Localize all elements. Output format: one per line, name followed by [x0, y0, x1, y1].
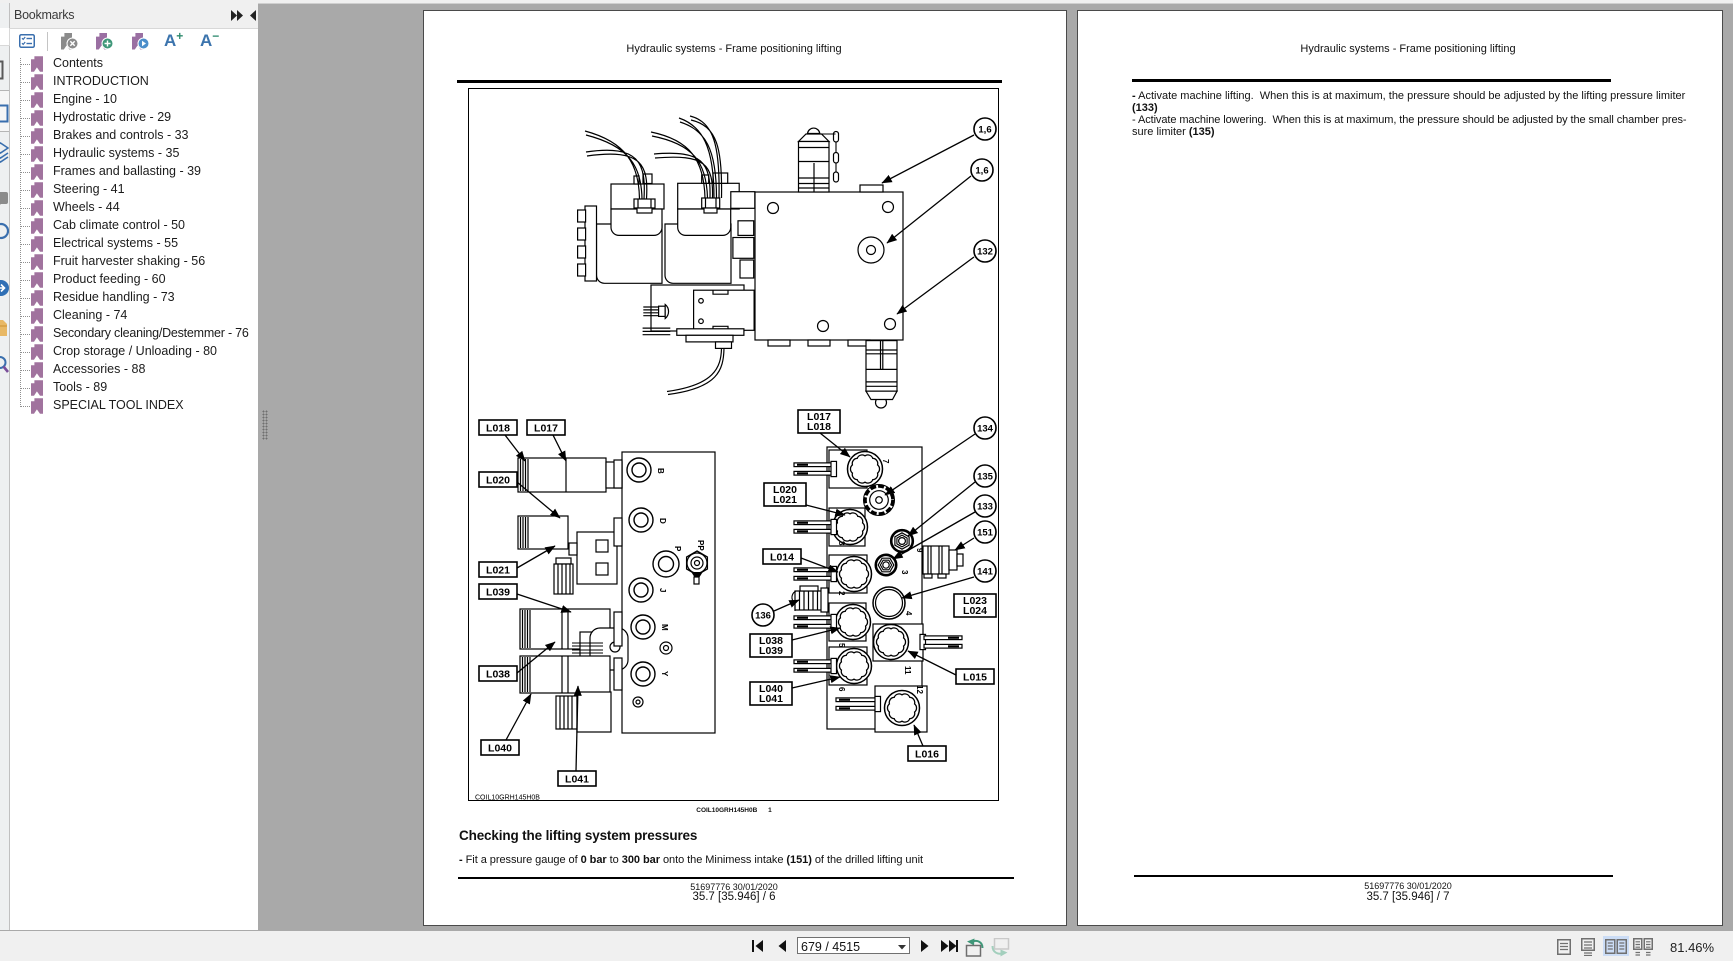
svg-text:L021: L021 — [773, 494, 797, 506]
svg-text:135: 135 — [977, 471, 994, 482]
svg-text:L018: L018 — [486, 423, 510, 435]
svg-text:L039: L039 — [759, 645, 783, 657]
svg-text:L041: L041 — [565, 774, 589, 786]
svg-text:7: 7 — [881, 459, 890, 464]
svg-text:Y: Y — [660, 671, 669, 677]
svg-text:COIL10GRH145H0B: COIL10GRH145H0B — [475, 795, 540, 802]
svg-text:1,6: 1,6 — [978, 124, 991, 135]
svg-text:L038: L038 — [486, 669, 510, 681]
svg-text:5: 5 — [837, 643, 846, 648]
svg-text:133: 133 — [977, 501, 993, 512]
svg-text:L017: L017 — [534, 423, 558, 435]
svg-text:L018: L018 — [807, 421, 831, 433]
svg-text:M: M — [660, 624, 669, 631]
svg-text:4: 4 — [904, 611, 913, 616]
svg-text:141: 141 — [977, 566, 994, 577]
svg-text:L015: L015 — [963, 672, 987, 684]
svg-text:B: B — [656, 468, 665, 474]
svg-text:11: 11 — [903, 666, 912, 675]
svg-text:L020: L020 — [486, 475, 510, 487]
svg-text:L021: L021 — [486, 565, 510, 577]
svg-text:L040: L040 — [488, 743, 512, 755]
svg-text:134: 134 — [977, 423, 994, 434]
svg-text:P: P — [673, 546, 682, 552]
svg-text:2: 2 — [837, 591, 846, 596]
svg-text:L041: L041 — [759, 693, 783, 705]
svg-text:J: J — [658, 588, 667, 592]
svg-text:9: 9 — [915, 548, 924, 553]
svg-text:12: 12 — [915, 685, 924, 694]
svg-text:3: 3 — [900, 570, 909, 575]
svg-text:L016: L016 — [915, 749, 939, 761]
svg-text:L024: L024 — [963, 605, 987, 617]
svg-text:L039: L039 — [486, 587, 510, 599]
svg-text:132: 132 — [977, 246, 993, 257]
svg-text:PP: PP — [696, 540, 705, 551]
svg-text:136: 136 — [755, 610, 771, 621]
svg-text:6: 6 — [837, 687, 846, 692]
svg-text:151: 151 — [977, 527, 994, 538]
svg-text:L014: L014 — [770, 552, 794, 564]
svg-text:8: 8 — [837, 541, 846, 546]
svg-text:D: D — [658, 518, 667, 524]
svg-text:1,6: 1,6 — [975, 165, 988, 176]
